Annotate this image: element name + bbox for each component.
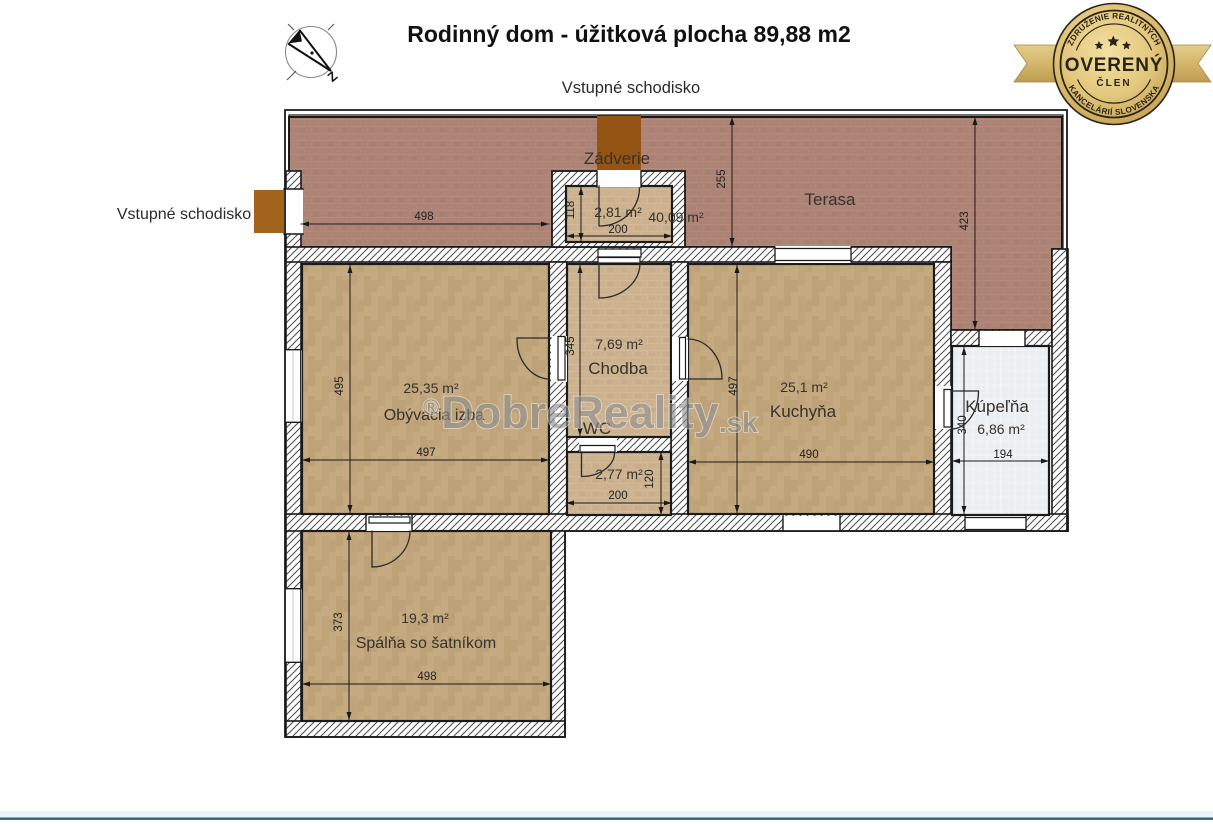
svg-text:497: 497	[728, 376, 740, 395]
svg-text:Vstupné schodisko: Vstupné schodisko	[562, 79, 701, 97]
svg-text:373: 373	[333, 612, 345, 631]
svg-text:®DobreReality.sk: ®DobreReality.sk	[423, 387, 758, 438]
svg-text:Vstupné schodisko: Vstupné schodisko	[117, 206, 251, 223]
svg-text:200: 200	[608, 490, 627, 502]
svg-text:118: 118	[565, 201, 577, 219]
svg-text:Chodba: Chodba	[588, 359, 648, 378]
svg-text:40,09 m²: 40,09 m²	[648, 209, 704, 225]
svg-text:Rodinný dom - úžitková plocha: Rodinný dom - úžitková plocha 89,88 m2	[407, 21, 850, 47]
svg-text:497: 497	[416, 447, 435, 459]
svg-text:6,86 m²: 6,86 m²	[977, 421, 1025, 437]
svg-text:498: 498	[414, 211, 433, 223]
svg-text:200: 200	[608, 224, 627, 236]
svg-text:ČLEN: ČLEN	[1096, 76, 1131, 89]
svg-text:498: 498	[417, 671, 436, 683]
svg-text:194: 194	[993, 449, 1013, 461]
svg-text:Terasa: Terasa	[804, 190, 856, 209]
svg-text:345: 345	[565, 336, 577, 355]
svg-text:7,69 m²: 7,69 m²	[595, 336, 643, 352]
svg-text:Kuchyňa: Kuchyňa	[770, 402, 837, 421]
svg-text:2,77 m²: 2,77 m²	[595, 466, 643, 482]
svg-text:OVERENÝ: OVERENÝ	[1065, 54, 1164, 76]
svg-text:340: 340	[957, 415, 969, 434]
svg-text:495: 495	[334, 376, 346, 395]
svg-text:25,1 m²: 25,1 m²	[780, 379, 828, 395]
svg-text:120: 120	[644, 469, 656, 488]
svg-text:2,81 m²: 2,81 m²	[594, 204, 642, 220]
svg-text:Kúpeľňa: Kúpeľňa	[965, 397, 1029, 416]
svg-text:Zádverie: Zádverie	[584, 149, 650, 168]
svg-text:Spálňa so šatníkom: Spálňa so šatníkom	[356, 635, 497, 652]
svg-text:490: 490	[799, 449, 818, 461]
svg-text:19,3 m²: 19,3 m²	[401, 610, 449, 626]
svg-text:423: 423	[959, 211, 971, 230]
svg-text:255: 255	[716, 169, 728, 188]
